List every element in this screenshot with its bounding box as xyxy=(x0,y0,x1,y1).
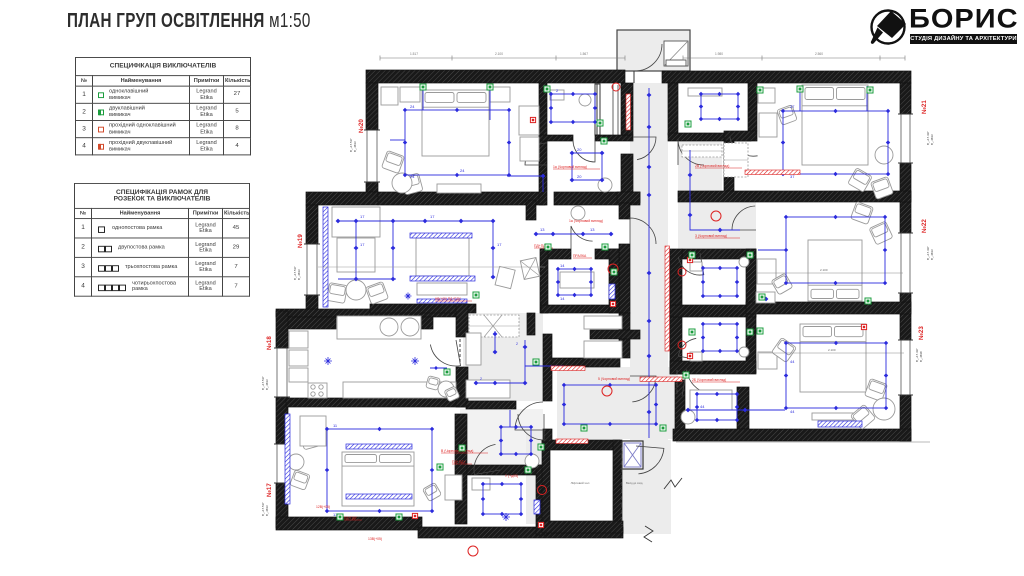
svg-text:В_-4813: В_-4813 xyxy=(265,379,269,390)
svg-text:24: 24 xyxy=(410,174,415,179)
svg-text:У (+д05): У (+д05) xyxy=(505,474,518,478)
svg-text:11: 11 xyxy=(333,423,338,428)
svg-text:Вихід до сход.: Вихід до сход. xyxy=(626,481,643,485)
svg-text:24: 24 xyxy=(460,168,465,173)
svg-text:17: 17 xyxy=(497,242,502,247)
svg-text:1а (Чорновий вигляд): 1а (Чорновий вигляд) xyxy=(553,165,587,169)
svg-text:2.100: 2.100 xyxy=(820,268,828,272)
svg-text:НВ(+05) ПД+ПДУ: НВ(+05) ПД+ПДУ xyxy=(435,297,462,301)
svg-text:2Б (Чорновий вигляд): 2Б (Чорновий вигляд) xyxy=(692,378,726,382)
svg-text:1.517: 1.517 xyxy=(410,52,418,56)
svg-text:37: 37 xyxy=(790,104,795,109)
svg-text:В_-4818: В_-4818 xyxy=(919,351,923,362)
svg-text:2.100: 2.100 xyxy=(828,348,836,352)
svg-text:ПД+ПДУ: ПД+ПДУ xyxy=(452,460,466,464)
svg-text:14: 14 xyxy=(560,263,565,268)
svg-text:17: 17 xyxy=(430,214,435,219)
svg-text:14: 14 xyxy=(560,296,565,301)
svg-text:№18: №18 xyxy=(266,336,273,350)
svg-text:В_-4813: В_-4813 xyxy=(297,269,301,280)
svg-text:№20: №20 xyxy=(358,119,365,133)
svg-text:Ліфтовий хол: Ліфтовий хол xyxy=(571,481,590,485)
svg-text:24: 24 xyxy=(410,104,415,109)
svg-text:2.100: 2.100 xyxy=(495,52,503,56)
svg-text:2: 2 xyxy=(516,342,518,346)
svg-text:13В(+05): 13В(+05) xyxy=(368,537,382,541)
svg-text:№22: №22 xyxy=(921,219,928,233)
svg-text:2В (Чорновий вигляд): 2В (Чорновий вигляд) xyxy=(695,164,729,168)
svg-text:2: 2 xyxy=(480,377,482,381)
svg-text:13: 13 xyxy=(590,227,595,232)
svg-text:ПРАЛКА: ПРАЛКА xyxy=(573,254,587,258)
svg-text:20: 20 xyxy=(577,174,582,179)
svg-text:1.980: 1.980 xyxy=(715,52,723,56)
svg-text:44: 44 xyxy=(790,409,795,414)
svg-text:№17: №17 xyxy=(266,483,273,497)
svg-text:1.567: 1.567 xyxy=(580,52,588,56)
svg-text:№19: №19 xyxy=(297,234,304,248)
svg-text:№23: №23 xyxy=(918,326,925,340)
svg-text:В_-4813: В_-4813 xyxy=(353,141,357,152)
svg-text:17: 17 xyxy=(360,214,365,219)
svg-text:20: 20 xyxy=(577,147,582,152)
svg-text:44: 44 xyxy=(700,404,705,409)
svg-text:5 (Чорновий вигляд): 5 (Чорновий вигляд) xyxy=(598,377,630,381)
svg-text:В_-4813: В_-4813 xyxy=(265,505,269,516)
svg-text:№21: №21 xyxy=(921,100,928,114)
svg-text:1а (Чорновий вигляд): 1а (Чорновий вигляд) xyxy=(569,219,603,223)
svg-text:12В(+05): 12В(+05) xyxy=(316,505,330,509)
svg-text:13: 13 xyxy=(540,227,545,232)
svg-text:44: 44 xyxy=(790,359,795,364)
svg-text:В (Чорновий вигляд): В (Чорновий вигляд) xyxy=(441,449,473,453)
svg-text:ПД+ПДУ: ПД+ПДУ xyxy=(344,516,358,520)
svg-text:17: 17 xyxy=(360,242,365,247)
svg-text:В_-4813: В_-4813 xyxy=(930,249,934,260)
svg-text:2.560: 2.560 xyxy=(815,52,823,56)
svg-text:В_-4813: В_-4813 xyxy=(930,134,934,145)
svg-text:3 (Чорновий вигляд): 3 (Чорновий вигляд) xyxy=(695,234,727,238)
